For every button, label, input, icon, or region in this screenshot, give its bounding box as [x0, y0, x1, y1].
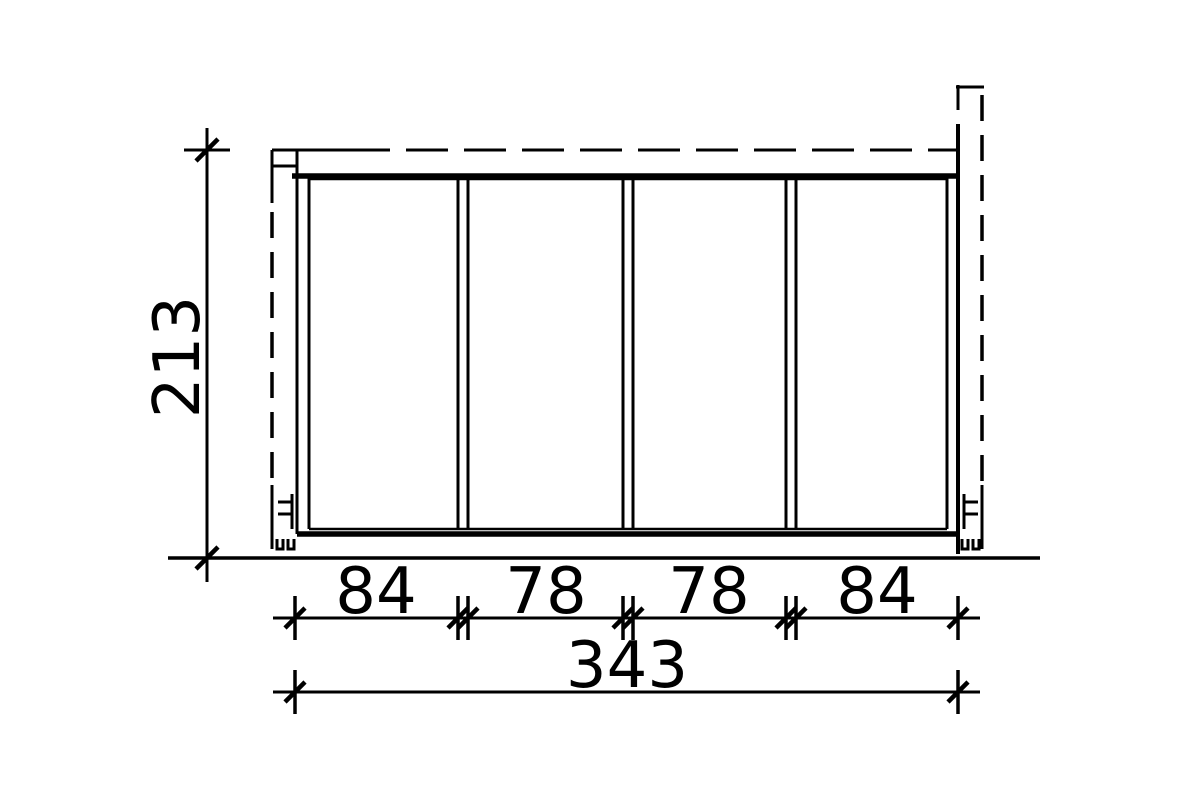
top-beam	[272, 150, 958, 176]
anchor-foot	[973, 539, 979, 549]
total-width-label: 343	[566, 629, 688, 703]
segment-dimension-row: 84 78 78 84	[273, 555, 980, 640]
left-post-anchor	[272, 485, 294, 549]
drawing-canvas: 213 84 78 78 84 343	[0, 0, 1200, 800]
segment-2-label: 78	[505, 555, 586, 629]
technical-drawing: 213 84 78 78 84 343	[0, 0, 1200, 800]
total-width-dimension: 343	[273, 629, 980, 714]
height-dimension-label: 213	[141, 296, 215, 418]
anchor-foot	[962, 539, 968, 549]
segment-1-label: 84	[335, 555, 416, 629]
anchor-foot	[288, 539, 294, 549]
segment-3-label: 78	[668, 555, 749, 629]
anchor-foot	[277, 539, 283, 549]
right-post	[956, 85, 984, 554]
wall-frame	[297, 150, 958, 534]
height-dimension: 213	[141, 128, 230, 582]
panel-dividers	[458, 177, 796, 529]
segment-4-label: 84	[836, 555, 917, 629]
right-post-anchor	[962, 485, 982, 549]
